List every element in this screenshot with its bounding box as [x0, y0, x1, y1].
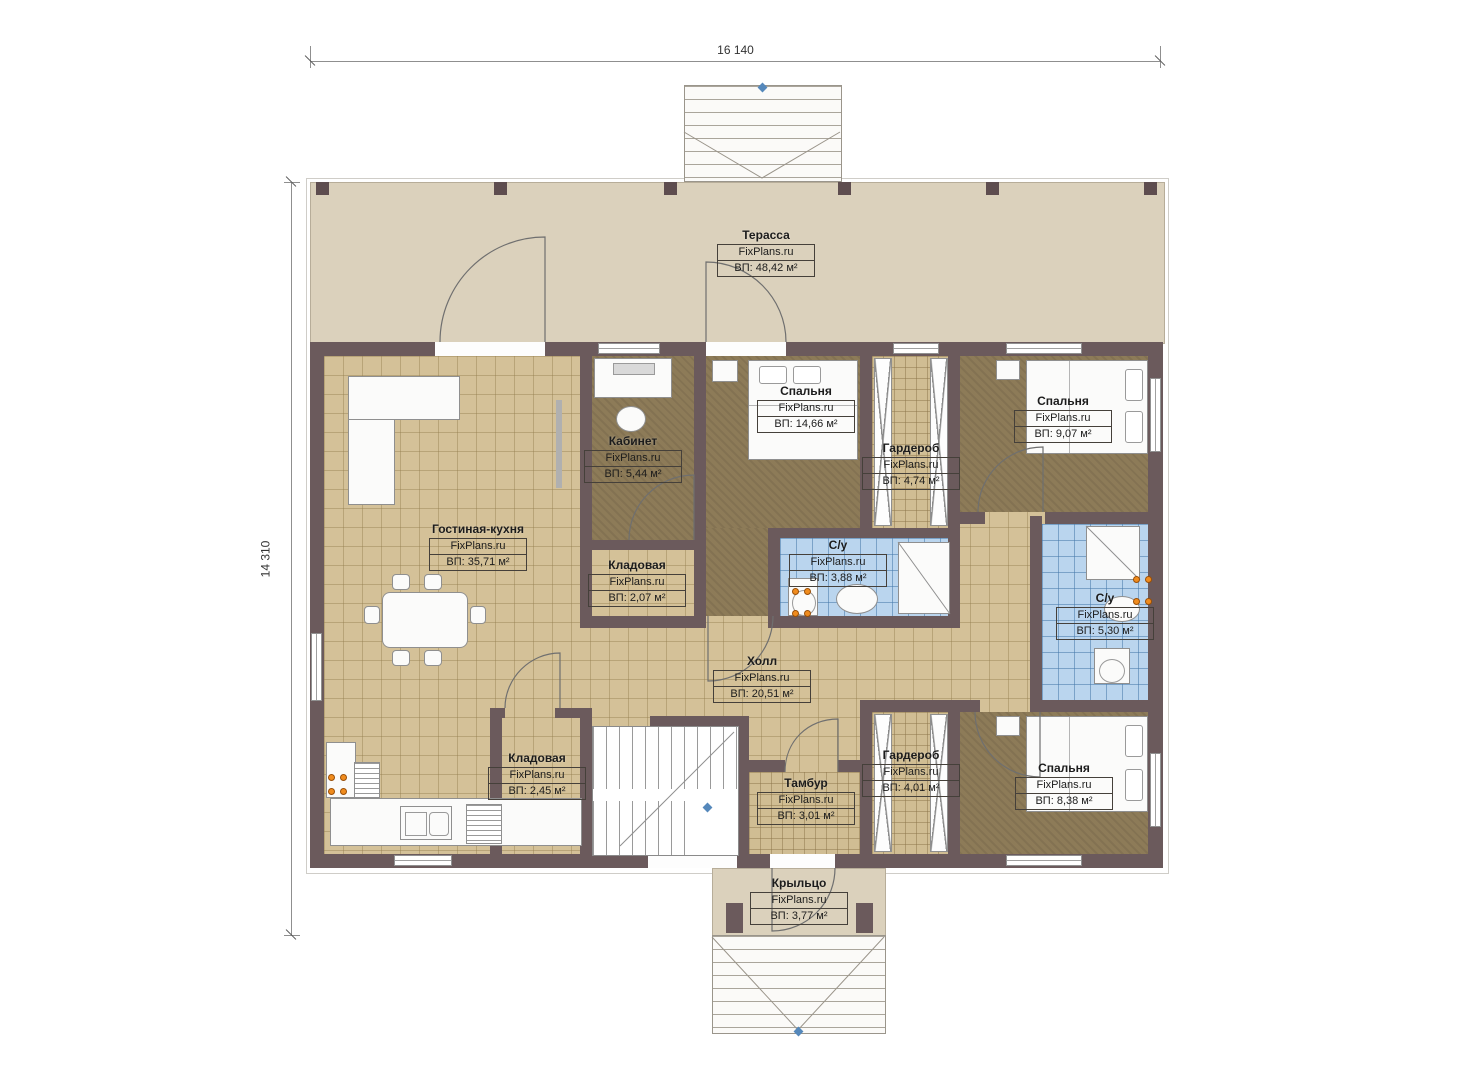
stair-direction-line: [684, 132, 840, 178]
room-label-bedroom-3: Спальня FixPlans.ru ВП: 8,38 м²: [994, 761, 1134, 810]
room-label-hall: Холл FixPlans.ru ВП: 20,51 м²: [692, 654, 832, 703]
room-area: ВП: 35,71 м²: [429, 554, 527, 571]
room-area: ВП: 20,51 м²: [713, 686, 811, 703]
stair-direction-line: [712, 937, 884, 1030]
door-arc: [629, 475, 694, 540]
room-name: Терасса: [742, 228, 790, 242]
room-area: ВП: 4,74 м²: [862, 473, 960, 490]
room-name: Кладовая: [608, 558, 665, 572]
stair-break-line: [620, 732, 734, 846]
stove-burner: [328, 774, 335, 781]
door-arc: [978, 447, 1043, 512]
room-name: Гардероб: [883, 748, 940, 762]
room-brand: FixPlans.ru: [588, 574, 686, 591]
stove-burner: [328, 788, 335, 795]
room-brand: FixPlans.ru: [757, 792, 855, 809]
room-brand: FixPlans.ru: [488, 767, 586, 784]
radiator-dot: [804, 610, 811, 617]
room-name: Гардероб: [883, 441, 940, 455]
stove-burner: [340, 788, 347, 795]
room-name: С/у: [829, 538, 848, 552]
room-label-porch: Крыльцо FixPlans.ru ВП: 3,77 м²: [729, 876, 869, 925]
room-label-vestibule: Тамбур FixPlans.ru ВП: 3,01 м²: [746, 776, 866, 825]
room-area: ВП: 2,07 м²: [588, 590, 686, 607]
door-arc: [785, 719, 838, 772]
room-name: Крыльцо: [772, 876, 827, 890]
room-brand: FixPlans.ru: [717, 244, 815, 261]
room-area: ВП: 9,07 м²: [1014, 426, 1112, 443]
radiator-dot: [1145, 576, 1152, 583]
room-name: Спальня: [1038, 761, 1090, 775]
stove-burner: [340, 774, 347, 781]
room-area: ВП: 2,45 м²: [488, 783, 586, 800]
room-brand: FixPlans.ru: [1014, 410, 1112, 427]
room-brand: FixPlans.ru: [862, 457, 960, 474]
room-label-living: Гостиная-кухня FixPlans.ru ВП: 35,71 м²: [408, 522, 548, 571]
room-name: Тамбур: [784, 776, 828, 790]
room-label-bath-2: С/у FixPlans.ru ВП: 5,30 м²: [1045, 591, 1165, 640]
radiator-dot: [1133, 576, 1140, 583]
room-name: С/у: [1096, 591, 1115, 605]
room-label-storage-2: Кладовая FixPlans.ru ВП: 2,45 м²: [477, 751, 597, 800]
room-label-wardrobe-2: Гардероб FixPlans.ru ВП: 4,01 м²: [851, 748, 971, 797]
room-name: Холл: [747, 654, 777, 668]
room-area: ВП: 14,66 м²: [757, 416, 855, 433]
room-area: ВП: 5,30 м²: [1056, 623, 1154, 640]
radiator-dot: [792, 610, 799, 617]
room-name: Гостиная-кухня: [432, 522, 524, 536]
room-area: ВП: 3,01 м²: [757, 808, 855, 825]
room-area: ВП: 3,77 м²: [750, 908, 848, 925]
room-brand: FixPlans.ru: [862, 764, 960, 781]
room-area: ВП: 8,38 м²: [1015, 793, 1113, 810]
room-label-storage-1: Кладовая FixPlans.ru ВП: 2,07 м²: [577, 558, 697, 607]
room-brand: FixPlans.ru: [713, 670, 811, 687]
room-brand: FixPlans.ru: [1015, 777, 1113, 794]
floor-plan-canvas: 16 140 14 310: [0, 0, 1474, 1080]
room-brand: FixPlans.ru: [757, 400, 855, 417]
door-arc: [440, 237, 545, 342]
room-name: Кладовая: [508, 751, 565, 765]
radiator-dot: [804, 588, 811, 595]
room-brand: FixPlans.ru: [750, 892, 848, 909]
room-area: ВП: 48,42 м²: [717, 260, 815, 277]
room-name: Спальня: [780, 384, 832, 398]
room-name: Кабинет: [609, 434, 658, 448]
room-brand: FixPlans.ru: [1056, 607, 1154, 624]
room-label-bath-1: С/у FixPlans.ru ВП: 3,88 м²: [778, 538, 898, 587]
room-brand: FixPlans.ru: [789, 554, 887, 571]
room-area: ВП: 4,01 м²: [862, 780, 960, 797]
shower-diagonal: [1086, 526, 1140, 580]
radiator-dot: [792, 588, 799, 595]
room-area: ВП: 5,44 м²: [584, 466, 682, 483]
door-arc: [505, 653, 560, 708]
room-label-bedroom-2: Спальня FixPlans.ru ВП: 9,07 м²: [993, 394, 1133, 443]
room-name: Спальня: [1037, 394, 1089, 408]
room-label-terrace: Терасса FixPlans.ru ВП: 48,42 м²: [696, 228, 836, 277]
room-label-bedroom-1: Спальня FixPlans.ru ВП: 14,66 м²: [736, 384, 876, 433]
room-label-office: Кабинет FixPlans.ru ВП: 5,44 м²: [573, 434, 693, 483]
shower-diagonal: [898, 542, 950, 614]
room-area: ВП: 3,88 м²: [789, 570, 887, 587]
room-label-wardrobe-1: Гардероб FixPlans.ru ВП: 4,74 м²: [851, 441, 971, 490]
room-brand: FixPlans.ru: [584, 450, 682, 467]
room-brand: FixPlans.ru: [429, 538, 527, 555]
